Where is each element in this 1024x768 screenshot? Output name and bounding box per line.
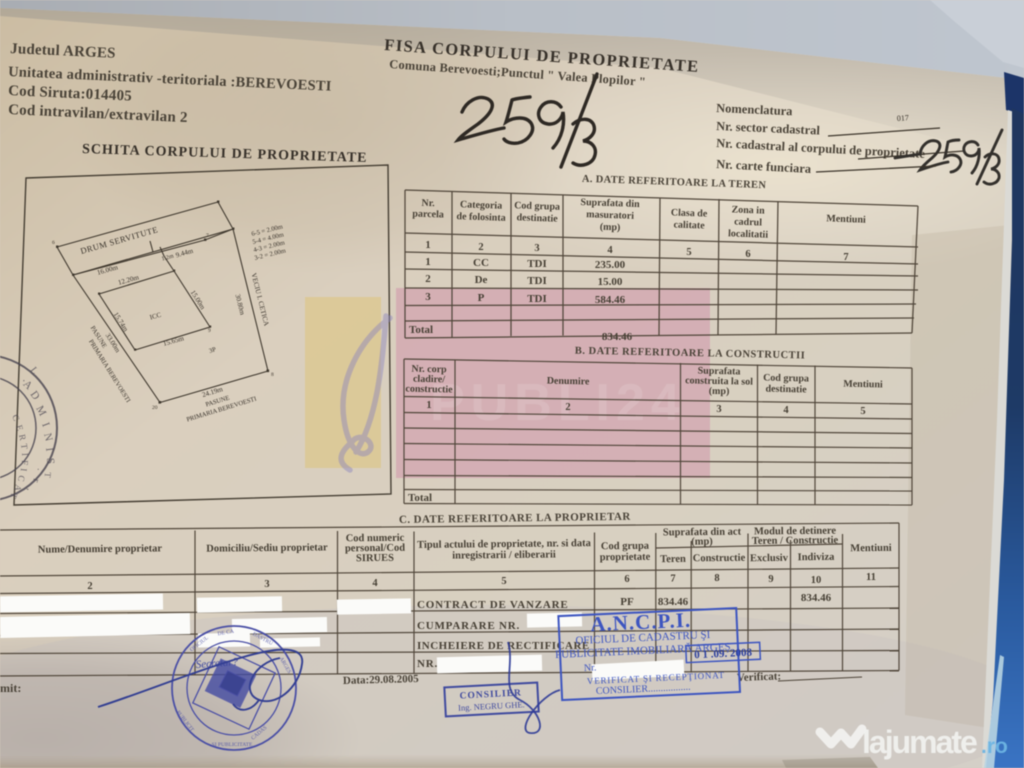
svg-text:CUMPARARE NR.: CUMPARARE NR. (417, 620, 520, 632)
svg-text:Cod grupa: Cod grupa (514, 200, 560, 213)
svg-text:Suprafata din: Suprafata din (580, 197, 640, 210)
svg-text:.ro: .ro (981, 735, 1008, 758)
svg-text:P: P (478, 292, 485, 304)
svg-text:lajumate: lajumate (862, 724, 977, 760)
svg-text:10: 10 (811, 575, 822, 586)
svg-text:Indiviza: Indiviza (798, 552, 836, 563)
svg-text:parcela: parcela (412, 208, 444, 220)
svg-text:Categoria: Categoria (460, 199, 503, 211)
svg-text:I: I (20, 453, 30, 456)
svg-text:6: 6 (52, 240, 55, 246)
svg-text:Cod grupa: Cod grupa (601, 541, 650, 553)
svg-text:1: 1 (426, 400, 431, 411)
svg-text:Nr.: Nr. (421, 198, 435, 209)
svg-text:Mentiuni: Mentiuni (843, 379, 883, 391)
svg-text:Denumire: Denumire (547, 376, 590, 388)
svg-text:de folosinta: de folosinta (456, 211, 506, 224)
svg-text:Nr.: Nr. (584, 662, 597, 674)
svg-text:9: 9 (768, 574, 773, 585)
svg-text:235.00: 235.00 (595, 259, 626, 271)
svg-text:1: 1 (425, 240, 430, 251)
svg-text:S: S (44, 458, 56, 465)
svg-text:De: De (475, 274, 488, 286)
svg-text:15.00: 15.00 (598, 276, 623, 288)
svg-text:5: 5 (686, 247, 691, 258)
svg-text:calitate: calitate (673, 219, 705, 231)
svg-text:Total: Total (408, 492, 432, 504)
svg-text:(mp): (mp) (691, 536, 713, 547)
svg-text:NR.: NR. (417, 658, 438, 670)
svg-text:(mp): (mp) (600, 222, 621, 234)
svg-text:Zona in: Zona in (731, 204, 765, 216)
svg-text:TDI: TDI (527, 258, 547, 270)
svg-text:cadrul: cadrul (734, 217, 762, 229)
svg-text:Tipul actului de proprietate,: Tipul actului de proprietate, nr. si dat… (417, 538, 592, 551)
svg-text:1: 1 (425, 256, 431, 268)
svg-text:2: 2 (425, 273, 431, 285)
svg-text:Mentiuni: Mentiuni (850, 543, 892, 554)
svg-text:PF: PF (620, 596, 634, 608)
svg-text:834.46: 834.46 (658, 596, 689, 608)
svg-text:destinatie: destinatie (516, 212, 558, 224)
svg-text:CC: CC (473, 257, 489, 269)
svg-text:Total: Total (409, 324, 433, 336)
svg-text:11: 11 (866, 572, 876, 583)
svg-text:7: 7 (206, 233, 209, 239)
svg-text:(mp): (mp) (709, 386, 730, 397)
svg-text:proprietate: proprietate (600, 552, 651, 564)
svg-text:584.46: 584.46 (595, 294, 626, 306)
svg-text:3: 3 (264, 579, 269, 590)
svg-text:6: 6 (745, 249, 750, 260)
svg-text:inregistrarii / eliberarii: inregistrarii / eliberarii (452, 549, 556, 561)
svg-text:7: 7 (843, 252, 848, 263)
svg-text:SI PUBLICITATE: SI PUBLICITATE (212, 742, 253, 748)
svg-text:9: 9 (208, 328, 211, 334)
svg-text:6: 6 (624, 574, 629, 585)
svg-text:destinatie: destinatie (765, 384, 807, 396)
svg-text:TDI: TDI (527, 293, 547, 305)
svg-text:Mentiuni: Mentiuni (826, 213, 866, 225)
svg-text:SIRUES: SIRUES (356, 553, 394, 564)
svg-text:constructie: constructie (405, 384, 453, 396)
svg-text:masuratori: masuratori (586, 209, 634, 222)
svg-text:2: 2 (87, 581, 92, 592)
svg-text:7: 7 (670, 574, 675, 585)
svg-text:4: 4 (372, 578, 378, 589)
svg-text:4: 4 (607, 245, 613, 256)
svg-text:5: 5 (860, 406, 865, 417)
svg-text:Constructie: Constructie (693, 553, 746, 565)
svg-text:3: 3 (425, 291, 431, 303)
svg-text:Data:29.08.2005: Data:29.08.2005 (343, 673, 420, 687)
svg-text:8: 8 (271, 372, 274, 378)
svg-text:3: 3 (534, 243, 539, 254)
svg-text:localitatii: localitatii (728, 228, 769, 240)
svg-text:5: 5 (501, 576, 506, 587)
svg-text:Clasa de: Clasa de (671, 207, 708, 219)
svg-text:Teren: Teren (660, 554, 686, 565)
svg-text:Verificat:: Verificat: (737, 670, 782, 684)
svg-text:mit:: mit: (0, 681, 21, 695)
svg-text:017: 017 (897, 113, 910, 123)
svg-text:834.46: 834.46 (602, 331, 633, 343)
svg-text:CONTRACT DE VANZARE: CONTRACT DE VANZARE (417, 599, 569, 611)
svg-text:3: 3 (716, 404, 721, 415)
svg-text:Exclusiv: Exclusiv (750, 553, 789, 564)
svg-text:2: 2 (478, 242, 483, 253)
svg-text:4: 4 (783, 405, 789, 416)
svg-text:2: 2 (565, 402, 570, 413)
svg-text:8: 8 (714, 573, 719, 584)
svg-text:F: F (20, 460, 30, 465)
svg-text:TDI: TDI (527, 275, 547, 287)
svg-text:Teren / Constructie: Teren / Constructie (752, 535, 839, 547)
svg-text:Domiciliu/Sediu proprietar: Domiciliu/Sediu proprietar (206, 542, 328, 554)
svg-text:Nume/Denumire proprietar: Nume/Denumire proprietar (38, 543, 163, 555)
svg-text:20: 20 (152, 405, 158, 411)
svg-text:834.46: 834.46 (801, 592, 832, 604)
